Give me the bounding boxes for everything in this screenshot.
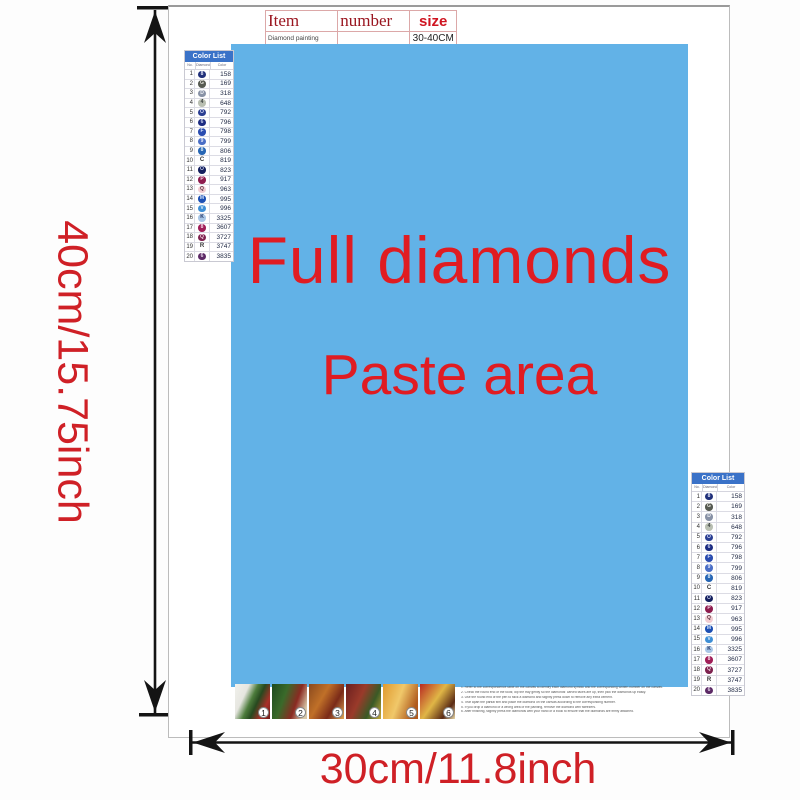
color-code: 792: [717, 534, 744, 541]
color-row-996: 15V996: [185, 204, 233, 214]
color-code: 648: [210, 100, 233, 107]
diamond-symbol-icon: C: [198, 157, 206, 165]
color-row-number: 11: [692, 594, 702, 603]
color-row-number: 8: [185, 137, 195, 146]
diamond-symbol-cell: O: [702, 533, 717, 542]
diamond-symbol-cell: 9: [195, 137, 210, 146]
color-row-number: 7: [185, 128, 195, 137]
color-row-number: 15: [692, 635, 702, 644]
diamond-symbol-cell: O: [195, 108, 210, 117]
color-row-995: 14M995: [185, 195, 233, 205]
diamond-symbol-cell: D: [195, 89, 210, 98]
step-number-badge: 3: [332, 707, 343, 718]
color-code: 158: [717, 493, 744, 500]
step-thumbnail-6: 6: [420, 684, 455, 719]
color-row-3607: 1783607: [692, 655, 744, 665]
color-code: 3607: [717, 656, 744, 663]
color-row-996: 15V996: [692, 635, 744, 645]
instruction-step-thumbnails: 123456: [235, 684, 455, 719]
diamond-symbol-icon: F: [198, 128, 206, 136]
diamond-symbol-icon: 6: [198, 119, 206, 127]
color-code: 3607: [210, 224, 233, 231]
color-row-number: 19: [692, 676, 702, 685]
color-code: 799: [717, 565, 744, 572]
color-code: 995: [210, 196, 233, 203]
color-row-number: 19: [185, 243, 195, 252]
instruction-text-block: 1. Refer to the correspondence table on …: [461, 686, 707, 715]
color-list-column-header: Diamond: [703, 484, 718, 491]
color-row-number: 3: [185, 89, 195, 98]
color-row-number: 16: [185, 214, 195, 223]
diamond-symbol-cell: 6: [702, 543, 717, 552]
color-code: 3835: [717, 687, 744, 694]
diamond-symbol-icon: Q: [198, 186, 206, 194]
diamond-symbol-icon: Q: [705, 615, 713, 623]
color-row-number: 12: [185, 176, 195, 185]
color-code: 648: [717, 524, 744, 531]
color-row-number: 16: [692, 645, 702, 654]
instruction-line: 1. Refer to the correspondence table on …: [461, 686, 707, 690]
diamond-symbol-cell: K: [195, 214, 210, 223]
diamond-symbol-icon: P: [198, 176, 206, 184]
color-row-number: 9: [185, 147, 195, 156]
diamond-symbol-cell: V: [195, 204, 210, 213]
diamond-symbol-icon: 6: [705, 687, 713, 695]
diamond-symbol-cell: 6: [195, 118, 210, 127]
color-code: 318: [210, 90, 233, 97]
diamond-symbol-cell: Q: [702, 614, 717, 623]
color-row-number: 20: [185, 252, 195, 261]
instruction-line: 5. If you drop a diamond or a wrong area…: [461, 706, 707, 710]
color-row-3325: 16K3325: [692, 645, 744, 655]
color-code: 963: [717, 616, 744, 623]
color-row-number: 17: [185, 224, 195, 233]
color-code: 3747: [210, 243, 233, 250]
step-number-badge: 6: [443, 707, 454, 718]
item-table-header: Item number size: [266, 11, 457, 32]
color-row-number: 15: [185, 204, 195, 213]
step-number-badge: 5: [406, 707, 417, 718]
diamond-symbol-icon: V: [198, 205, 206, 213]
diamond-symbol-cell: D: [702, 512, 717, 521]
color-row-917: 12P917: [692, 604, 744, 614]
diamond-symbol-icon: P: [705, 605, 713, 613]
color-code: 996: [717, 636, 744, 643]
color-row-number: 4: [692, 523, 702, 532]
diamond-symbol-icon: 4: [198, 99, 206, 107]
color-row-number: 3: [692, 512, 702, 521]
color-row-number: 17: [692, 655, 702, 664]
color-list-column-headers: No.DiamondColor: [692, 484, 744, 492]
step-number-badge: 2: [295, 707, 306, 718]
color-code: 169: [210, 80, 233, 87]
diamond-symbol-cell: V: [702, 635, 717, 644]
diamond-symbol-icon: 8: [705, 493, 713, 501]
color-code: 823: [717, 595, 744, 602]
color-list-title: Color List: [185, 51, 233, 62]
color-row-798: 7F798: [185, 128, 233, 138]
color-row-819: 10C819: [185, 156, 233, 166]
color-code: 823: [210, 167, 233, 174]
color-row-792: 5O792: [692, 533, 744, 543]
color-row-169: 2G169: [185, 80, 233, 90]
color-row-number: 1: [185, 70, 195, 79]
color-row-number: 7: [692, 553, 702, 562]
diamond-symbol-cell: 8: [702, 574, 717, 583]
color-list-table-left: Color ListNo.DiamondColor181582G1693D318…: [184, 50, 234, 262]
color-code: 169: [717, 503, 744, 510]
diamond-symbol-cell: P: [702, 604, 717, 613]
diamond-symbol-cell: 8: [702, 655, 717, 664]
color-row-917: 12P917: [185, 176, 233, 186]
diamond-symbol-cell: C: [702, 584, 717, 593]
color-list-column-header: No.: [692, 484, 703, 491]
step-thumbnail-2: 2: [272, 684, 307, 719]
color-row-792: 5O792: [185, 108, 233, 118]
color-code: 917: [210, 176, 233, 183]
diamond-symbol-cell: C: [195, 156, 210, 165]
color-row-169: 2G169: [692, 502, 744, 512]
color-row-3727: 18Q3727: [692, 665, 744, 675]
color-row-799: 89799: [692, 563, 744, 573]
diamond-symbol-icon: 6: [198, 253, 206, 261]
color-row-number: 5: [185, 108, 195, 117]
color-row-318: 3D318: [185, 89, 233, 99]
color-row-number: 1: [692, 492, 702, 501]
color-code: 3747: [717, 677, 744, 684]
instruction-line: 3. Use the round end of the pen to stick…: [461, 696, 707, 700]
diamond-symbol-icon: C: [705, 585, 713, 593]
size-header-cell: size: [410, 11, 457, 32]
color-row-number: 8: [692, 563, 702, 572]
color-row-318: 3D318: [692, 512, 744, 522]
color-row-number: 6: [692, 543, 702, 552]
color-row-number: 18: [185, 233, 195, 242]
diamond-symbol-cell: R: [195, 243, 210, 252]
color-code: 3325: [210, 215, 233, 222]
diamond-symbol-cell: G: [702, 502, 717, 511]
color-row-3727: 18Q3727: [185, 233, 233, 243]
diamond-symbol-cell: Q: [702, 665, 717, 674]
instruction-line: 2. Check the round end of the tools; dip…: [461, 691, 707, 695]
width-dimension-label: 30cm/11.8inch: [320, 745, 596, 794]
diamond-symbol-icon: M: [705, 625, 713, 633]
color-code: 996: [210, 205, 233, 212]
color-code: 158: [210, 71, 233, 78]
color-row-3607: 1783607: [185, 224, 233, 234]
diamond-symbol-icon: R: [705, 677, 713, 685]
diamond-symbol-icon: 8: [705, 656, 713, 664]
color-code: 819: [717, 585, 744, 592]
color-row-823: 11O823: [185, 166, 233, 176]
color-row-963: 13Q963: [692, 614, 744, 624]
paste-area-subtitle: Paste area: [231, 342, 688, 408]
color-code: 798: [717, 554, 744, 561]
color-row-799: 89799: [185, 137, 233, 147]
color-row-819: 10C819: [692, 584, 744, 594]
diamond-symbol-icon: D: [198, 90, 206, 98]
paste-area: Full diamonds Paste area: [231, 44, 688, 687]
color-row-823: 11O823: [692, 594, 744, 604]
step-thumbnail-1: 1: [235, 684, 270, 719]
diamond-symbol-cell: G: [195, 80, 210, 89]
color-code: 792: [210, 109, 233, 116]
color-row-3835: 2063835: [185, 252, 233, 261]
color-code: 796: [717, 544, 744, 551]
color-code: 819: [210, 157, 233, 164]
color-row-796: 66796: [692, 543, 744, 553]
color-code: 318: [717, 514, 744, 521]
diamond-symbol-cell: F: [702, 553, 717, 562]
color-code: 917: [717, 605, 744, 612]
step-number-badge: 4: [369, 707, 380, 718]
color-row-806: 98806: [692, 574, 744, 584]
color-row-158: 18158: [185, 70, 233, 80]
diamond-symbol-cell: O: [195, 166, 210, 175]
diamond-symbol-icon: O: [198, 109, 206, 117]
color-list-column-header: Diamond: [196, 62, 211, 69]
diamond-symbol-icon: 8: [198, 147, 206, 155]
diamond-symbol-cell: 4: [195, 99, 210, 108]
color-row-number: 14: [185, 195, 195, 204]
diamond-symbol-cell: 8: [195, 70, 210, 79]
diamond-symbol-cell: 6: [702, 686, 717, 695]
diamond-symbol-icon: 8: [198, 224, 206, 232]
color-code: 806: [717, 575, 744, 582]
diamond-symbol-cell: 6: [195, 252, 210, 261]
color-row-3325: 16K3325: [185, 214, 233, 224]
diamond-symbol-cell: Q: [195, 233, 210, 242]
color-row-number: 11: [185, 166, 195, 175]
item-header-cell: Item: [266, 11, 338, 32]
diamond-symbol-icon: G: [705, 503, 713, 511]
step-number-badge: 1: [258, 707, 269, 718]
number-header-cell: number: [338, 11, 410, 32]
diamond-symbol-icon: K: [198, 214, 206, 222]
diamond-symbol-icon: 9: [198, 138, 206, 146]
diamond-symbol-cell: M: [702, 625, 717, 634]
diamond-symbol-cell: R: [702, 676, 717, 685]
diamond-symbol-icon: R: [198, 243, 206, 251]
color-code: 995: [717, 626, 744, 633]
color-row-number: 20: [692, 686, 702, 695]
color-row-3747: 19R3747: [692, 676, 744, 686]
color-code: 3727: [210, 234, 233, 241]
diamond-symbol-cell: O: [702, 594, 717, 603]
color-row-3747: 19R3747: [185, 243, 233, 253]
diamond-symbol-cell: F: [195, 128, 210, 137]
height-dimension-label: 40cm/15.75inch: [48, 220, 97, 524]
color-row-number: 12: [692, 604, 702, 613]
diamond-symbol-icon: V: [705, 636, 713, 644]
color-row-number: 13: [692, 614, 702, 623]
diamond-symbol-icon: Q: [705, 666, 713, 674]
color-row-number: 5: [692, 533, 702, 542]
color-list-title: Color List: [692, 473, 744, 484]
step-thumbnail-5: 5: [383, 684, 418, 719]
diamond-symbol-icon: 8: [705, 574, 713, 582]
color-row-995: 14M995: [692, 625, 744, 635]
diamond-symbol-icon: Q: [198, 234, 206, 242]
instruction-line: 6. After finishing, slightly press the d…: [461, 710, 707, 714]
diamond-symbol-cell: 9: [702, 563, 717, 572]
color-row-number: 14: [692, 625, 702, 634]
diamond-symbol-icon: 6: [705, 544, 713, 552]
item-info-table: Item number size Diamond painting 30-40C…: [265, 10, 457, 46]
color-list-column-header: No.: [185, 62, 196, 69]
color-list-column-headers: No.DiamondColor: [185, 62, 233, 70]
color-row-648: 44648: [185, 99, 233, 109]
paste-area-title: Full diamonds: [231, 44, 688, 298]
color-row-648: 44648: [692, 523, 744, 533]
diamond-symbol-icon: 4: [705, 523, 713, 531]
diamond-symbol-cell: 8: [702, 492, 717, 501]
color-row-798: 7F798: [692, 553, 744, 563]
color-row-number: 2: [185, 80, 195, 89]
color-code: 3727: [717, 667, 744, 674]
diamond-symbol-icon: G: [198, 80, 206, 88]
diamond-symbol-icon: O: [705, 595, 713, 603]
step-thumbnail-4: 4: [346, 684, 381, 719]
color-row-3835: 2063835: [692, 686, 744, 695]
color-row-number: 9: [692, 574, 702, 583]
diamond-symbol-cell: K: [702, 645, 717, 654]
color-row-number: 13: [185, 185, 195, 194]
color-row-number: 4: [185, 99, 195, 108]
color-code: 806: [210, 148, 233, 155]
instruction-line: 4. Tear apart the partial film and place…: [461, 701, 707, 705]
color-code: 3835: [210, 253, 233, 260]
diamond-symbol-cell: Q: [195, 185, 210, 194]
color-row-158: 18158: [692, 492, 744, 502]
color-row-number: 10: [692, 584, 702, 593]
diamond-symbol-icon: F: [705, 554, 713, 562]
product-dimension-diagram: 40cm/15.75inch Item number size Diamond …: [0, 0, 800, 800]
diamond-symbol-cell: 8: [195, 224, 210, 233]
diamond-symbol-icon: D: [705, 513, 713, 521]
diamond-symbol-cell: 4: [702, 523, 717, 532]
color-code: 963: [210, 186, 233, 193]
color-row-number: 2: [692, 502, 702, 511]
diamond-symbol-icon: K: [705, 646, 713, 654]
color-list-column-header: Color: [718, 484, 744, 491]
diamond-symbol-icon: 8: [198, 71, 206, 79]
color-code: 796: [210, 119, 233, 126]
diamond-symbol-icon: O: [198, 166, 206, 174]
color-row-796: 66796: [185, 118, 233, 128]
diamond-symbol-icon: M: [198, 195, 206, 203]
color-row-number: 18: [692, 665, 702, 674]
color-row-number: 6: [185, 118, 195, 127]
diamond-symbol-cell: P: [195, 176, 210, 185]
canvas-sheet: Item number size Diamond painting 30-40C…: [168, 5, 730, 738]
diamond-symbol-cell: M: [195, 195, 210, 204]
color-row-806: 98806: [185, 147, 233, 157]
color-code: 3325: [717, 646, 744, 653]
color-code: 798: [210, 128, 233, 135]
color-list-column-header: Color: [211, 62, 233, 69]
color-list-table-right: Color ListNo.DiamondColor181582G1693D318…: [691, 472, 745, 696]
step-thumbnail-3: 3: [309, 684, 344, 719]
diamond-symbol-icon: 9: [705, 564, 713, 572]
color-code: 799: [210, 138, 233, 145]
color-row-number: 10: [185, 156, 195, 165]
color-row-963: 13Q963: [185, 185, 233, 195]
diamond-symbol-icon: O: [705, 534, 713, 542]
diamond-symbol-cell: 8: [195, 147, 210, 156]
